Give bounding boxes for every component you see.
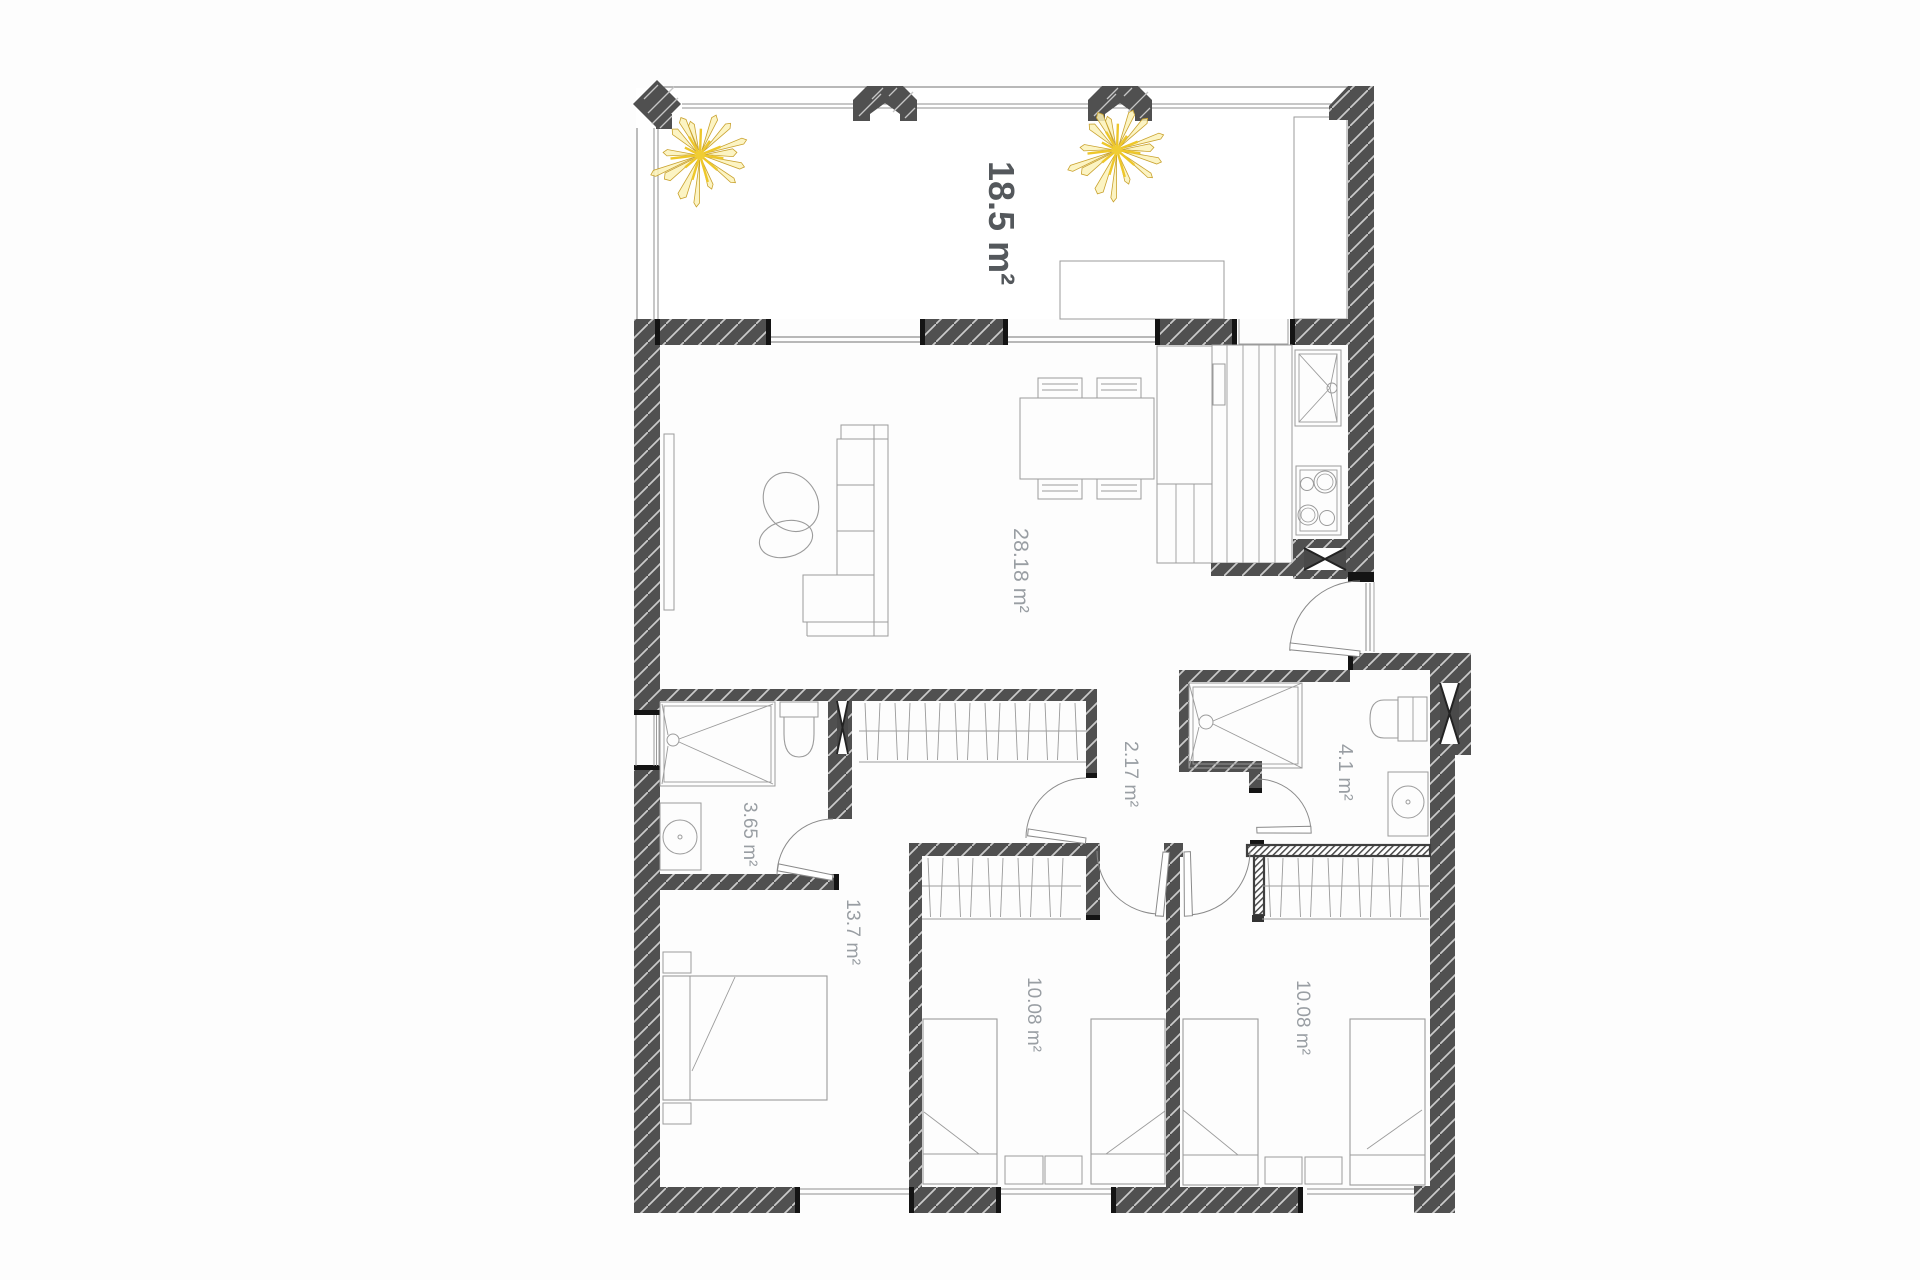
svg-text:28.18 m²: 28.18 m² bbox=[1009, 528, 1033, 613]
svg-text:10.08 m²: 10.08 m² bbox=[1023, 977, 1044, 1052]
svg-text:18.5 m²: 18.5 m² bbox=[981, 161, 1022, 285]
svg-text:10.08 m²: 10.08 m² bbox=[1292, 980, 1313, 1055]
svg-text:2.17 m²: 2.17 m² bbox=[1120, 741, 1142, 808]
svg-text:3.65 m²: 3.65 m² bbox=[739, 802, 760, 866]
svg-text:13.7 m²: 13.7 m² bbox=[842, 899, 864, 966]
svg-text:4.1 m²: 4.1 m² bbox=[1334, 744, 1356, 801]
